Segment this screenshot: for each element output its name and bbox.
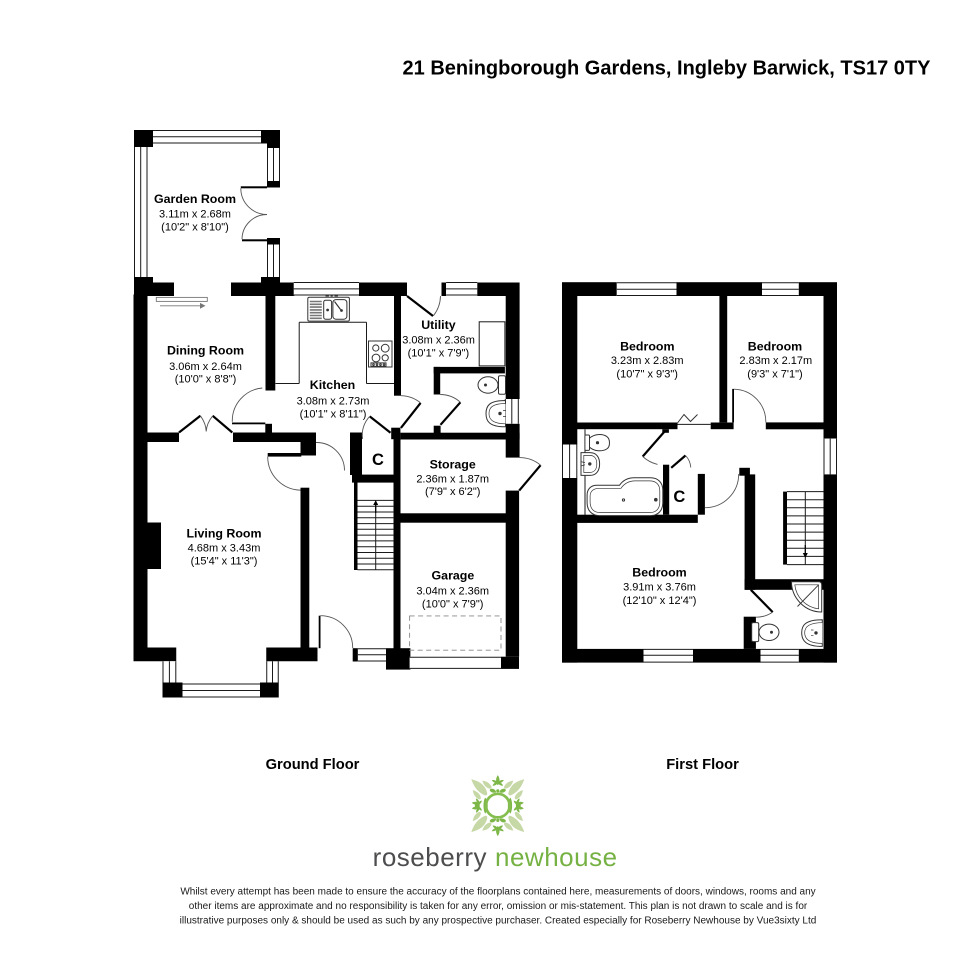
- svg-text:Kitchen: Kitchen: [310, 378, 355, 392]
- svg-text:(15'4" x 11'3"): (15'4" x 11'3"): [191, 555, 258, 567]
- svg-text:C: C: [372, 451, 384, 469]
- svg-text:Ground Floor: Ground Floor: [266, 757, 360, 773]
- svg-text:(10'2" x 8'10"): (10'2" x 8'10"): [161, 222, 229, 234]
- svg-text:3.04m x 2.36m: 3.04m x 2.36m: [416, 585, 489, 597]
- svg-text:Whilst every attempt has been: Whilst every attempt has been made to en…: [180, 887, 815, 898]
- svg-text:Dining Room: Dining Room: [167, 344, 244, 358]
- svg-text:(10'1" x 7'9"): (10'1" x 7'9"): [408, 347, 470, 359]
- svg-text:Garage: Garage: [432, 568, 475, 582]
- svg-text:3.08m x 2.36m: 3.08m x 2.36m: [402, 335, 475, 347]
- svg-text:(7'9" x 6'2"): (7'9" x 6'2"): [425, 486, 480, 498]
- svg-text:2.83m x 2.17m: 2.83m x 2.17m: [739, 355, 812, 367]
- svg-text:4.68m x 3.43m: 4.68m x 3.43m: [188, 542, 261, 554]
- svg-text:First Floor: First Floor: [666, 757, 739, 773]
- svg-text:(10'7" x 9'3"): (10'7" x 9'3"): [616, 368, 678, 380]
- svg-text:C: C: [673, 488, 685, 506]
- svg-text:roseberry: roseberry: [373, 842, 487, 872]
- svg-text:Storage: Storage: [430, 457, 476, 471]
- svg-text:Garden Room: Garden Room: [154, 192, 236, 206]
- svg-text:3.06m x 2.64m: 3.06m x 2.64m: [169, 361, 242, 373]
- svg-text:Bedroom: Bedroom: [632, 565, 686, 579]
- svg-text:3.91m x 3.76m: 3.91m x 3.76m: [623, 582, 696, 594]
- svg-text:3.11m x 2.68m: 3.11m x 2.68m: [159, 208, 231, 220]
- svg-text:2.36m x 1.87m: 2.36m x 1.87m: [416, 473, 489, 485]
- svg-text:Bedroom: Bedroom: [748, 339, 802, 353]
- svg-text:(9'3" x 7'1"): (9'3" x 7'1"): [747, 368, 802, 380]
- svg-text:newhouse: newhouse: [495, 842, 618, 872]
- svg-text:(10'0" x 7'9"): (10'0" x 7'9"): [422, 599, 484, 611]
- svg-text:3.23m x 2.83m: 3.23m x 2.83m: [611, 355, 684, 367]
- svg-text:illustrative purposes only & s: illustrative purposes only & should be u…: [180, 916, 817, 927]
- svg-text:Bedroom: Bedroom: [620, 339, 674, 353]
- svg-text:other items are approximate an: other items are approximate and no respo…: [189, 901, 808, 912]
- svg-text:(10'0" x 8'8"): (10'0" x 8'8"): [175, 374, 237, 386]
- svg-text:21 Beningborough Gardens, Ingl: 21 Beningborough Gardens, Ingleby Barwic…: [403, 58, 932, 80]
- svg-text:Utility: Utility: [421, 318, 456, 332]
- svg-text:(12'10" x 12'4"): (12'10" x 12'4"): [623, 595, 697, 607]
- svg-text:3.08m x 2.73m: 3.08m x 2.73m: [297, 395, 370, 407]
- svg-text:(10'1" x 8'11"): (10'1" x 8'11"): [300, 408, 367, 420]
- svg-text:Living Room: Living Room: [186, 527, 261, 541]
